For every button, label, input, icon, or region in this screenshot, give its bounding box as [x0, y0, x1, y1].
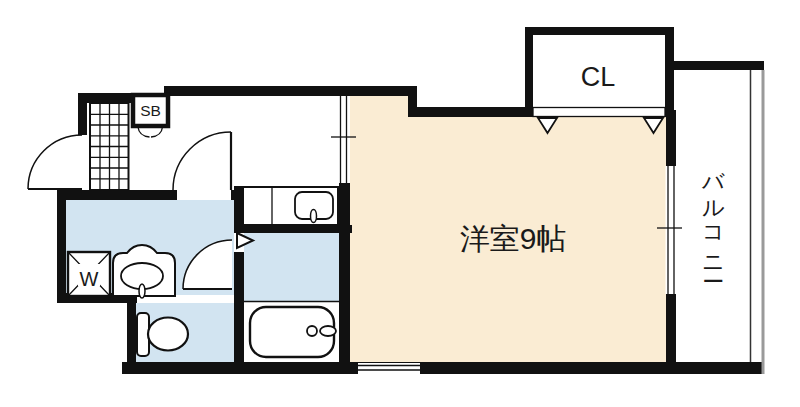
- balcony-window-gap: [666, 166, 677, 294]
- washer-icon: W: [68, 252, 110, 296]
- closet-label: CL: [581, 62, 616, 92]
- wall-segment: [127, 293, 136, 372]
- shoe-box-label: SB: [140, 102, 161, 119]
- wall-segment: [57, 190, 177, 200]
- wall-segment: [234, 225, 352, 233]
- wall-segment: [78, 93, 87, 135]
- wall-segment: [665, 27, 674, 117]
- balcony-label: バルコニー: [701, 157, 726, 282]
- bottom-window-gap: [358, 363, 420, 374]
- wall-segment: [665, 61, 764, 70]
- sink-faucet-icon: [139, 284, 145, 298]
- bathtub-icon: [244, 302, 339, 358]
- washroom-door: [173, 132, 231, 190]
- wall-segment: [666, 110, 676, 166]
- entrance-door: [28, 135, 82, 189]
- wall-segment: [122, 362, 764, 374]
- wall-segment: [57, 190, 66, 303]
- wall-segment: [339, 183, 350, 373]
- wall-segment: [525, 27, 533, 117]
- kitchen-faucet-icon: [311, 210, 317, 223]
- closet-door-band: [533, 108, 665, 117]
- sliding-door-gap: [338, 96, 351, 183]
- room-bathroom: [244, 233, 339, 301]
- shoe-box-door-arcs: [138, 127, 163, 137]
- main-room-label: 洋室9帖: [460, 222, 567, 255]
- toilet-bowl: [148, 318, 188, 351]
- entrance-door-arc: [28, 135, 82, 189]
- wall-segment: [408, 107, 533, 117]
- entrance-tile: [90, 103, 129, 190]
- washroom-fixtures: W: [68, 245, 175, 298]
- bathtub-faucet-icon: [320, 326, 336, 336]
- wall-segment: [164, 86, 417, 96]
- floor-plan: W CL SB 洋室9帖 バルコニー: [0, 0, 800, 407]
- washer-label: W: [80, 268, 99, 290]
- bottom-window: [358, 363, 420, 374]
- wall-segment: [525, 27, 673, 35]
- bathtub-drain-icon: [307, 326, 317, 336]
- floor-plan-canvas: W CL SB 洋室9帖 バルコニー: [0, 0, 800, 407]
- washroom-door-arc: [173, 132, 231, 190]
- sink-icon: [113, 245, 175, 298]
- wall-segment: [234, 252, 244, 372]
- wall-segment: [666, 294, 676, 370]
- kitchen-counter: [243, 187, 338, 225]
